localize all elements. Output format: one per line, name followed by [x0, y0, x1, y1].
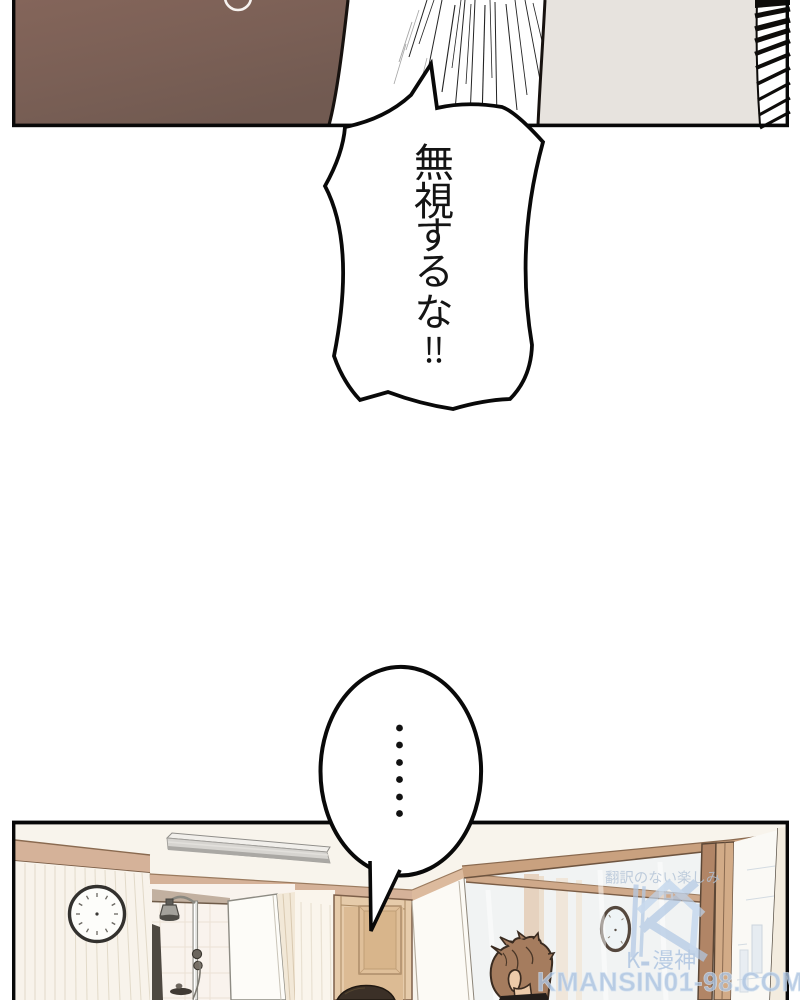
svg-text:KMANSIN01-98.COM: KMANSIN01-98.COM — [537, 967, 800, 997]
